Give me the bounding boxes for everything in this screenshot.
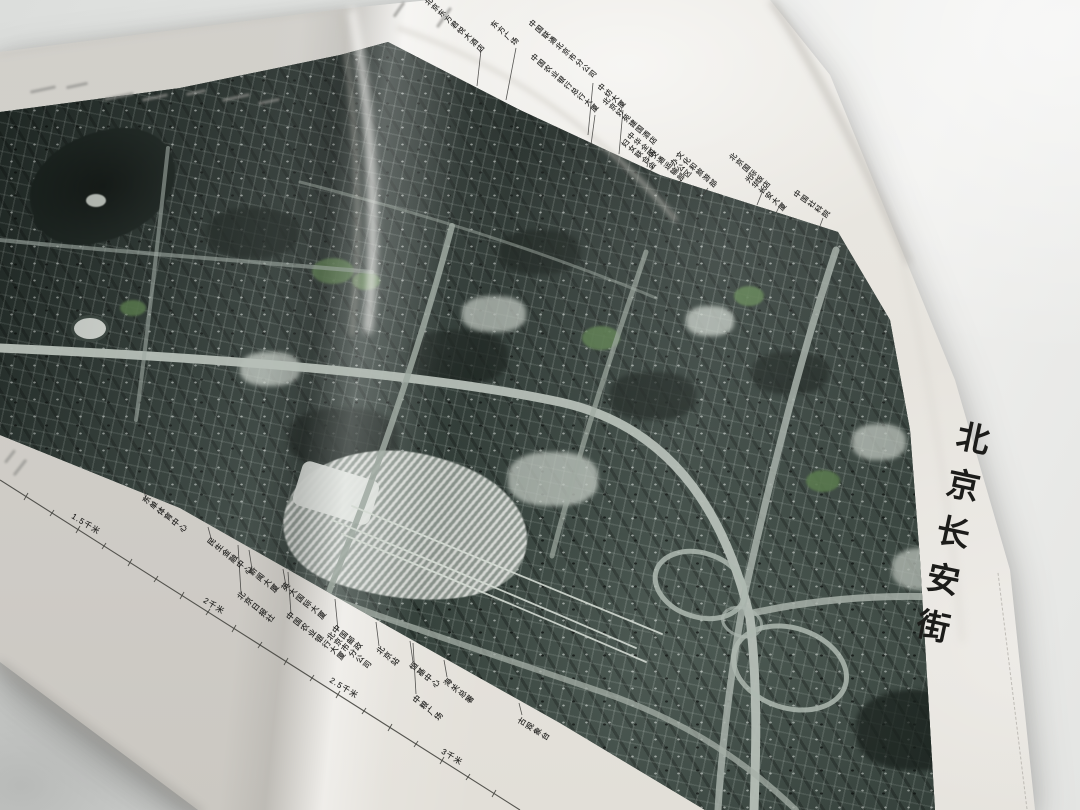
photo-of-map-book: 北京东方君悦大酒店 东方广场 中国联通北京市分公司 中国农业银行总行大厦 中纺大… (0, 0, 1080, 810)
